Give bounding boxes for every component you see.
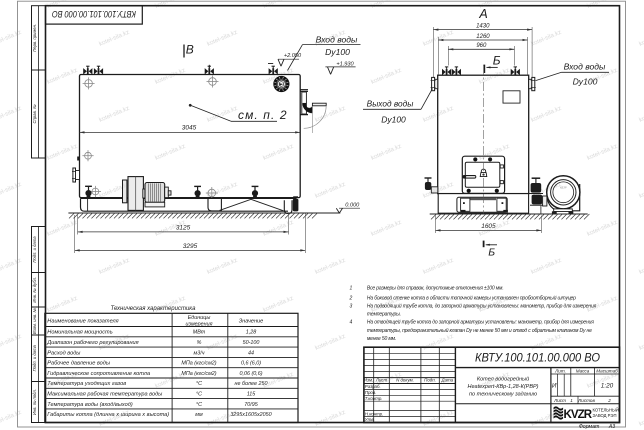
svg-text:kotel-sila.kz: kotel-sila.kz xyxy=(530,409,562,428)
svg-text:В: В xyxy=(186,42,194,56)
svg-text:Подп.: Подп. xyxy=(424,378,436,383)
svg-text:50-100: 50-100 xyxy=(243,340,260,346)
svg-text:Справ. №: Справ. № xyxy=(32,104,37,123)
svg-text:kotel-sila.kz: kotel-sila.kz xyxy=(638,257,644,276)
svg-text:Подп. и дата: Подп. и дата xyxy=(32,344,37,371)
svg-text:Рабочее давление воды: Рабочее давление воды xyxy=(47,361,110,367)
svg-text:kotel-sila.kz: kotel-sila.kz xyxy=(0,105,23,124)
svg-text:kotel-sila.kz: kotel-sila.kz xyxy=(46,67,78,86)
svg-text:Dy100: Dy100 xyxy=(325,47,350,57)
svg-text:kotel-sila.kz: kotel-sila.kz xyxy=(530,333,562,352)
svg-text:kotel-sila.kz: kotel-sila.kz xyxy=(262,295,294,314)
svg-text:kotel-sila.kz: kotel-sila.kz xyxy=(370,219,402,238)
svg-text:Формат: Формат xyxy=(579,424,600,430)
svg-text:3045: 3045 xyxy=(182,124,197,131)
svg-text:2: 2 xyxy=(607,398,611,403)
svg-text:kotel-sila.kz: kotel-sila.kz xyxy=(0,29,23,48)
svg-text:kotel-sila.kz: kotel-sila.kz xyxy=(262,371,294,390)
svg-text:+2.050: +2.050 xyxy=(284,53,302,59)
svg-text:1260: 1260 xyxy=(476,34,490,40)
svg-text:kotel-sila.kz: kotel-sila.kz xyxy=(98,29,130,48)
svg-text:kotel-sila.kz: kotel-sila.kz xyxy=(0,257,23,276)
svg-text:На отводящей трубе котла до за: На отводящей трубе котла до запорной арм… xyxy=(367,319,594,326)
svg-text:kotel-sila.kz: kotel-sila.kz xyxy=(262,219,294,238)
svg-text:0,06 (0,6): 0,06 (0,6) xyxy=(239,371,262,377)
svg-text:Взам. инв. №: Взам. инв. № xyxy=(32,308,37,334)
svg-text:kotel-sila.kz: kotel-sila.kz xyxy=(530,257,562,276)
svg-text:м3/ч: м3/ч xyxy=(194,350,205,356)
svg-text:КОТЕЛЬНЫЙ: КОТЕЛЬНЫЙ xyxy=(593,408,619,413)
svg-text:kotel-sila.kz: kotel-sila.kz xyxy=(206,409,238,428)
svg-text:kotel-sila.kz: kotel-sila.kz xyxy=(638,29,644,48)
svg-text:kotel-sila.kz: kotel-sila.kz xyxy=(154,371,186,390)
svg-text:Н.контр.: Н.контр. xyxy=(365,411,384,416)
svg-text:Температура воды (вход/выход): Температура воды (вход/выход) xyxy=(47,402,133,408)
svg-text:Б: Б xyxy=(488,246,495,258)
svg-text:kotel-sila.kz: kotel-sila.kz xyxy=(314,333,346,352)
svg-text:kotel-sila.kz: kotel-sila.kz xyxy=(530,29,562,48)
svg-text:Наименование показателя: Наименование показателя xyxy=(47,319,118,325)
svg-text:kotel-sila.kz: kotel-sila.kz xyxy=(370,143,402,162)
svg-text:МВт: МВт xyxy=(193,330,206,336)
svg-text:Утв.: Утв. xyxy=(365,417,375,422)
svg-text:960: 960 xyxy=(476,43,487,49)
svg-text:Dy100: Dy100 xyxy=(381,114,406,124)
svg-text:менее 50 мм.: менее 50 мм. xyxy=(367,336,396,342)
svg-text:44: 44 xyxy=(248,350,254,356)
svg-text:измерения: измерения xyxy=(186,322,213,328)
svg-text:3: 3 xyxy=(350,304,353,310)
svg-text:Перв. примен.: Перв. примен. xyxy=(32,24,37,52)
svg-text:И: И xyxy=(552,383,557,390)
svg-text:КВТУ.100.101.00.000 ВО: КВТУ.100.101.00.000 ВО xyxy=(52,9,136,19)
svg-text:по техническому заданию: по техническому заданию xyxy=(469,391,537,397)
svg-text:kotel-sila.kz: kotel-sila.kz xyxy=(314,105,346,124)
svg-text:kotel-sila.kz: kotel-sila.kz xyxy=(586,219,618,238)
svg-text:kotel-sila.kz: kotel-sila.kz xyxy=(638,181,644,200)
svg-text:kotel-sila.kz: kotel-sila.kz xyxy=(0,333,23,352)
svg-text:kotel-sila.kz: kotel-sila.kz xyxy=(370,67,402,86)
svg-text:см. п. 2: см. п. 2 xyxy=(238,108,288,122)
svg-text:МПа (кгс/см2): МПа (кгс/см2) xyxy=(181,371,216,377)
svg-text:kotel-sila.kz: kotel-sila.kz xyxy=(314,257,346,276)
svg-text:Расход воды: Расход воды xyxy=(47,350,80,356)
svg-text:Дата: Дата xyxy=(441,378,454,383)
svg-text:kotel-sila.kz: kotel-sila.kz xyxy=(638,333,644,352)
svg-text:70/95: 70/95 xyxy=(244,402,258,408)
svg-text:МПа (кгс/см2): МПа (кгс/см2) xyxy=(181,361,216,367)
svg-text:Пров.: Пров. xyxy=(365,390,377,395)
svg-text:Масса: Масса xyxy=(576,368,590,373)
svg-text:1,28: 1,28 xyxy=(246,330,257,336)
svg-text:Лист: Лист xyxy=(553,398,566,403)
svg-text:%: % xyxy=(197,340,202,346)
svg-text:kotel-sila.kz: kotel-sila.kz xyxy=(314,409,346,428)
svg-text:1430: 1430 xyxy=(476,23,490,29)
svg-text:Лит.: Лит. xyxy=(554,368,566,373)
svg-text:мм: мм xyxy=(195,412,203,418)
svg-text:Б: Б xyxy=(493,54,501,68)
svg-text:kotel-sila.kz: kotel-sila.kz xyxy=(206,29,238,48)
svg-text:3295: 3295 xyxy=(183,243,198,250)
svg-text:Листов: Листов xyxy=(577,398,595,403)
svg-text:А3: А3 xyxy=(608,424,615,430)
svg-text:kotel-sila.kz: kotel-sila.kz xyxy=(314,181,346,200)
svg-text:ЗАВОД РЭП: ЗАВОД РЭП xyxy=(593,413,617,418)
svg-text:Единицы: Единицы xyxy=(188,315,211,321)
svg-text:Выход воды: Выход воды xyxy=(367,98,414,108)
svg-text:Подп. и дата: Подп. и дата xyxy=(32,236,37,263)
svg-text:Максимальная рабочая температу: Максимальная рабочая температура воды xyxy=(47,391,162,397)
svg-text:Инв. № дубл.: Инв. № дубл. xyxy=(32,277,37,303)
svg-text:Номинальная мощность: Номинальная мощность xyxy=(47,330,112,336)
svg-text:4: 4 xyxy=(350,320,353,326)
svg-text:115: 115 xyxy=(247,391,257,397)
svg-text:kotel-sila.kz: kotel-sila.kz xyxy=(46,295,78,314)
svg-text:Вход воды: Вход воды xyxy=(564,62,606,72)
svg-text:Т.контр.: Т.контр. xyxy=(365,396,383,401)
svg-text:°С: °С xyxy=(196,391,202,397)
svg-text:kotel-sila.kz: kotel-sila.kz xyxy=(586,143,618,162)
svg-text:kotel-sila.kz: kotel-sila.kz xyxy=(422,333,454,352)
svg-text:°С: °С xyxy=(196,402,202,408)
svg-text:kotel-sila.kz: kotel-sila.kz xyxy=(46,219,78,238)
svg-text:Инв. № подл.: Инв. № подл. xyxy=(32,389,37,415)
svg-text:kotel-sila.kz: kotel-sila.kz xyxy=(422,257,454,276)
svg-text:kotel-sila.kz: kotel-sila.kz xyxy=(638,409,644,428)
svg-text:1: 1 xyxy=(570,398,573,403)
svg-text:Значение: Значение xyxy=(239,319,264,325)
svg-text:kotel-sila.kz: kotel-sila.kz xyxy=(530,105,562,124)
svg-text:2: 2 xyxy=(349,296,353,302)
svg-text:0,6 (6,0): 0,6 (6,0) xyxy=(241,361,261,367)
svg-text:KVZR: KVZR xyxy=(564,409,593,421)
svg-text:kotel-sila.kz: kotel-sila.kz xyxy=(206,257,238,276)
svg-text:kotel-sila.kz: kotel-sila.kz xyxy=(422,409,454,428)
svg-text:kotel-sila.kz: kotel-sila.kz xyxy=(0,409,23,428)
svg-text:kotel-sila.kz: kotel-sila.kz xyxy=(0,181,23,200)
svg-text:Все размеры для справок, допус: Все размеры для справок, допустимые откл… xyxy=(367,285,504,291)
svg-text:КВТУ.100.101.00.000 ВО: КВТУ.100.101.00.000 ВО xyxy=(475,351,600,365)
svg-text:kotel-sila.kz: kotel-sila.kz xyxy=(638,105,644,124)
svg-text:kotel-sila.kz: kotel-sila.kz xyxy=(46,143,78,162)
svg-text:1: 1 xyxy=(350,285,353,291)
svg-text:kotel-sila.kz: kotel-sila.kz xyxy=(586,295,618,314)
svg-text:kotel-sila.kz: kotel-sila.kz xyxy=(206,333,238,352)
svg-text:+1.930: +1.930 xyxy=(336,61,354,67)
svg-text:kotel-sila.kz: kotel-sila.kz xyxy=(98,257,130,276)
svg-text:°С: °С xyxy=(196,381,202,387)
svg-text:0.000: 0.000 xyxy=(345,202,360,208)
svg-text:kotel-sila.kz: kotel-sila.kz xyxy=(478,219,510,238)
